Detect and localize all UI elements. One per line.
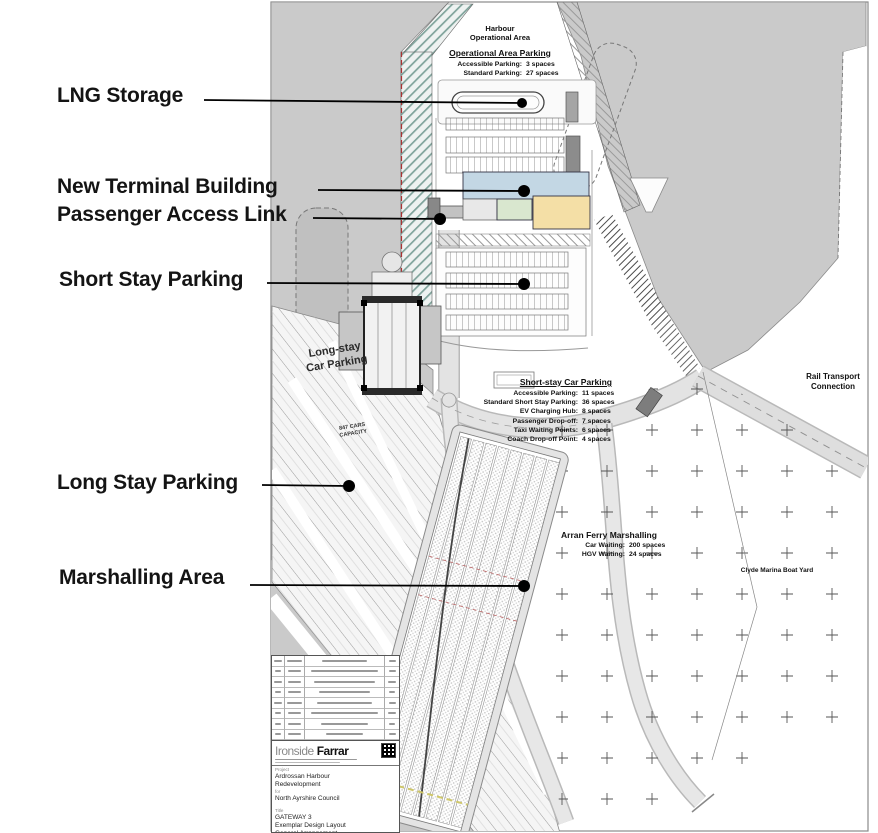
drawing-title-section: Title GATEWAY 3 Exemplar Design Layout G… xyxy=(272,805,399,833)
annotation-lng-storage: LNG Storage xyxy=(57,84,183,108)
site-plan-page: LNG Storage New Terminal Building Passen… xyxy=(0,0,878,833)
ss-row-value: 8 spaces xyxy=(582,407,628,416)
op-row-label: Accessible Parking: xyxy=(428,60,522,69)
project-line2: Redevelopment xyxy=(275,781,396,789)
rail-connection-label: Rail Transport Connection xyxy=(793,372,873,393)
marshalling-title: Arran Ferry Marshalling xyxy=(545,530,673,540)
op-row-value: 27 spaces xyxy=(526,69,572,78)
leader-lines xyxy=(0,0,878,833)
client-name: North Ayrshire Council xyxy=(275,795,396,803)
logo-sublines xyxy=(272,758,399,766)
short-stay-title: Short-stay Car Parking xyxy=(468,377,628,387)
logo-light-text: Ironside xyxy=(275,744,314,758)
leader-dot-passenger-link xyxy=(434,213,446,225)
annotation-long-stay-parking: Long Stay Parking xyxy=(57,471,238,495)
ss-row-label: Coach Drop-off Point: xyxy=(468,435,578,444)
operational-parking-schedule: Harbour Operational Area Operational Are… xyxy=(428,24,572,78)
leader-dot-marshalling xyxy=(518,580,530,592)
drawing-line1: GATEWAY 3 xyxy=(275,814,396,822)
annotation-short-stay-parking: Short Stay Parking xyxy=(59,268,243,292)
leader-dot-short-stay xyxy=(518,278,530,290)
rail-line1: Rail Transport xyxy=(793,372,873,382)
ss-row-value: 4 spaces xyxy=(582,435,628,444)
logo-bold-text: Farrar xyxy=(317,744,349,758)
leader-dot-long-stay xyxy=(343,480,355,492)
annotation-new-terminal: New Terminal Building xyxy=(57,175,278,199)
ss-row-value: 11 spaces xyxy=(582,389,628,398)
short-stay-schedule: Short-stay Car Parking Accessible Parkin… xyxy=(468,377,628,444)
project-line1: Ardrossan Harbour xyxy=(275,773,396,781)
annotation-marshalling-area: Marshalling Area xyxy=(59,566,224,590)
drawing-line2: Exemplar Design Layout xyxy=(275,822,396,830)
qr-code xyxy=(381,743,396,758)
ss-row-label: Passenger Drop-off: xyxy=(468,417,578,426)
m-row-value: 200 spaces xyxy=(629,541,673,550)
revision-table xyxy=(272,656,399,741)
annotation-passenger-link: Passenger Access Link xyxy=(57,203,287,227)
m-row-label: HGV Waiting: xyxy=(545,550,625,559)
clyde-marina-label: Clyde Marina Boat Yard xyxy=(731,567,823,574)
ss-row-value: 7 spaces xyxy=(582,417,628,426)
leader-dot-lng xyxy=(517,98,527,108)
ss-row-label: EV Charging Hub: xyxy=(468,407,578,416)
operational-parking-title: Operational Area Parking xyxy=(428,48,572,58)
leader-dot-terminal xyxy=(518,185,530,197)
ss-row-value: 36 spaces xyxy=(582,398,628,407)
m-row-label: Car Waiting: xyxy=(545,541,625,550)
op-row-label: Standard Parking: xyxy=(428,69,522,78)
project-section: Project Ardrossan Harbour Redevelopment … xyxy=(272,766,399,805)
ss-row-label: Accessible Parking: xyxy=(468,389,578,398)
consultant-logo: IronsideFarrar xyxy=(272,741,399,758)
ss-row-label: Taxi Waiting Points: xyxy=(468,426,578,435)
rail-line2: Connection xyxy=(793,382,873,392)
ss-row-value: 6 spaces xyxy=(582,426,628,435)
m-row-value: 24 spaces xyxy=(629,550,673,559)
op-row-value: 3 spaces xyxy=(526,60,572,69)
marshalling-schedule: Arran Ferry Marshalling Car Waiting: 200… xyxy=(545,530,673,559)
ss-row-label: Standard Short Stay Parking: xyxy=(468,398,578,407)
harbour-area-line2: Operational Area xyxy=(428,33,572,42)
harbour-area-line1: Harbour xyxy=(428,24,572,33)
title-block: IronsideFarrar Project Ardrossan Harbour… xyxy=(271,655,400,833)
